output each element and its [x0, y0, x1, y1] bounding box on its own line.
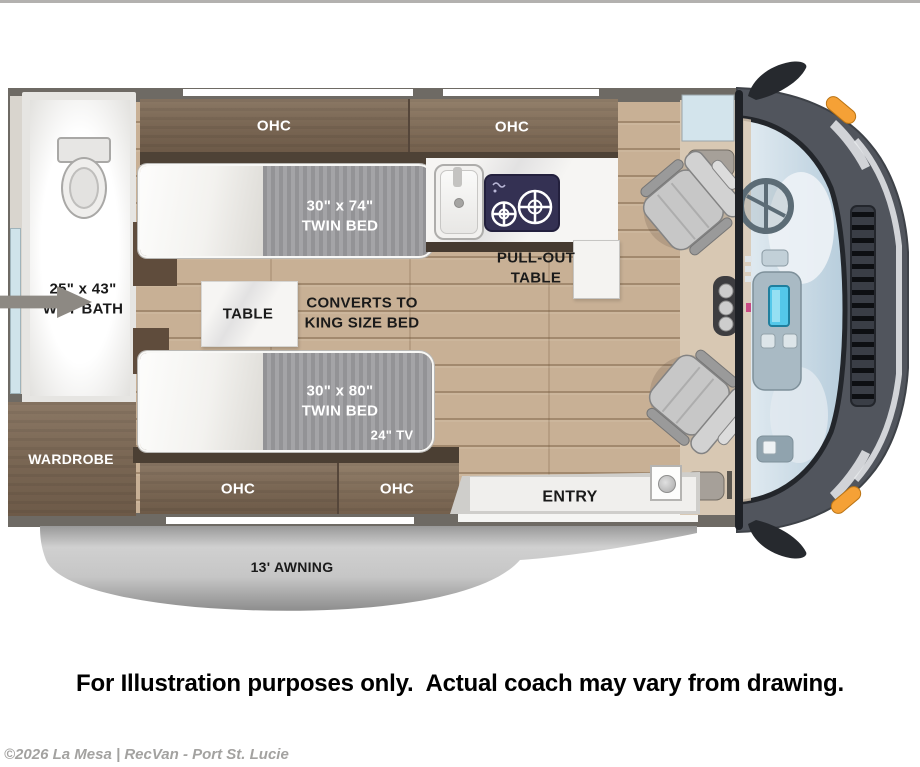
toilet-seat [69, 167, 99, 209]
wardrobe-label: WARDROBE [28, 450, 114, 468]
copyright-text: ©2026 La Mesa | RecVan - Port St. Lucie [4, 746, 289, 763]
ohc-top-left-label: OHC [257, 116, 291, 136]
awning-label: 13' AWNING [251, 558, 334, 576]
table-label: TABLE [223, 304, 273, 324]
entry-label: ENTRY [542, 488, 597, 509]
awning [30, 518, 720, 623]
window-top-right [443, 89, 599, 96]
twin-bed-bottom-label: 30" x 80" TWIN BED [302, 382, 379, 421]
bed-linen [140, 353, 263, 450]
utility-box [650, 465, 682, 501]
cooktop [484, 174, 560, 232]
sink [434, 164, 484, 240]
pull-out-table-label: PULL-OUT TABLE [497, 249, 575, 288]
grille [851, 206, 875, 406]
utility-box-knob [658, 475, 676, 493]
sink-drain [454, 198, 464, 208]
twin-bed-top-label: 30" x 74" TWIN BED [302, 197, 379, 236]
a-pillar [735, 90, 743, 530]
floorplan-canvas: 25" x 43" WET BATH WARDROBE OHC OHC OHC … [0, 0, 920, 767]
ohc-bottom-right-label: OHC [380, 479, 414, 499]
ohc-bottom-left-label: OHC [221, 479, 255, 499]
converts-label: CONVERTS TO KING SIZE BED [305, 294, 420, 333]
twin-bed-top [138, 164, 434, 258]
top-border-line [0, 0, 920, 3]
awning-canopy [40, 526, 697, 611]
ohc-top-right-label: OHC [495, 117, 529, 137]
tv-label: 24" TV [371, 428, 414, 445]
cab-window [682, 95, 734, 141]
disclaimer-text: For Illustration purposes only. Actual c… [76, 670, 844, 698]
faucet [453, 167, 462, 187]
rear-door-window [10, 228, 21, 394]
bed-linen [140, 166, 263, 256]
window-top-left [183, 89, 413, 96]
